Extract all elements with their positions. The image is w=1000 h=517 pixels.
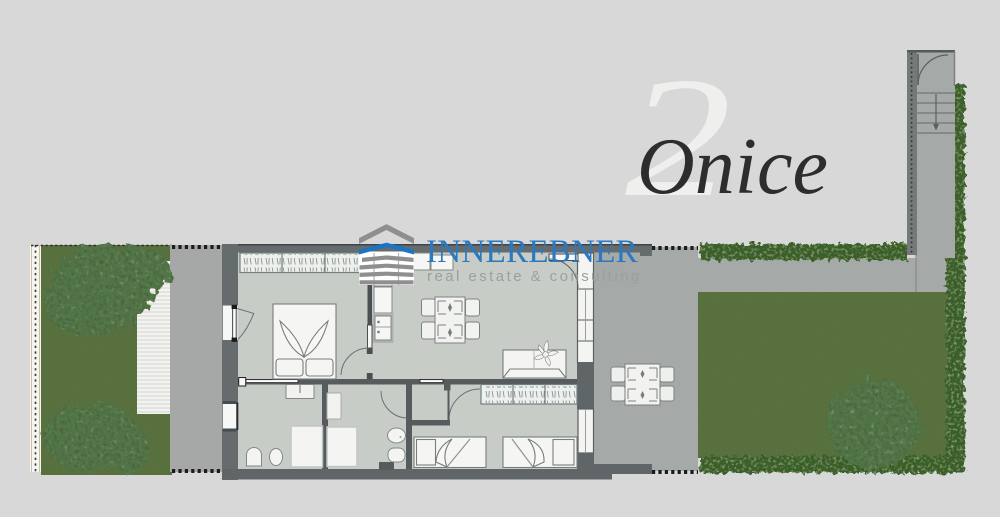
svg-text:INNEREBNER: INNEREBNER: [426, 234, 638, 270]
svg-text:real estate & consulting: real estate & consulting: [427, 268, 642, 285]
svg-text:Onice: Onice: [637, 123, 828, 211]
